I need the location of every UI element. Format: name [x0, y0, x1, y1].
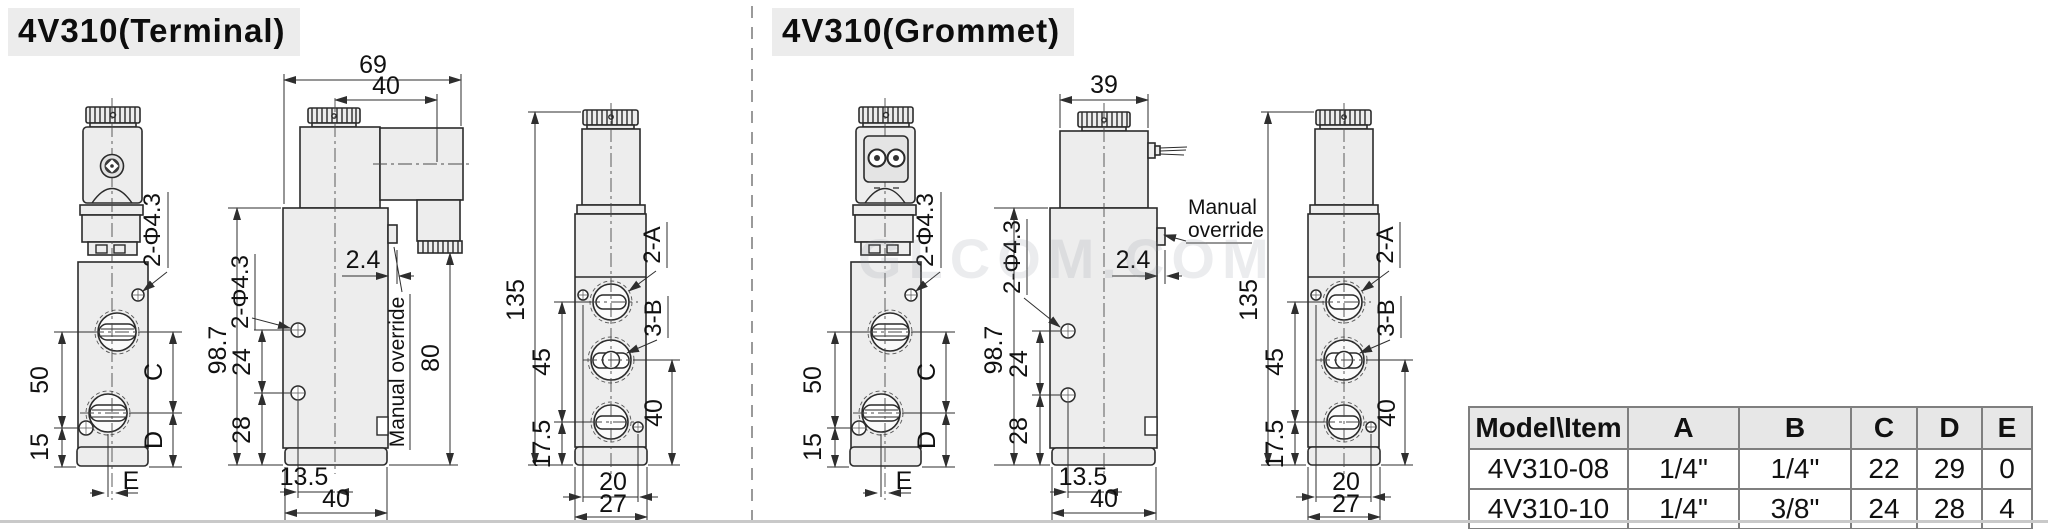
dim-hole-label: 2-Φ4.3 [912, 193, 939, 267]
dim-hole-label: 2-Φ4.3 [227, 255, 254, 329]
dim-40-right: 40 [1373, 399, 1401, 427]
dim-40-bottom: 40 [1090, 485, 1118, 513]
col-model-item: Model\Item [1469, 407, 1628, 449]
dim-24: 24 [1005, 350, 1033, 378]
table-row: 4V310-10 1/4" 3/8" 24 28 4 [1469, 489, 2032, 529]
col-a: A [1628, 407, 1739, 449]
dim-40-bottom: 40 [322, 485, 350, 513]
spec-table-header-row: Model\Item A B C D E [1469, 407, 2032, 449]
port-label-2A: 2-A [1372, 226, 1399, 263]
dim-39: 39 [1090, 71, 1118, 99]
dim-40-right: 40 [640, 399, 668, 427]
dim-15: 15 [799, 433, 827, 461]
dim-135: 135 [1235, 279, 1263, 321]
dim-135: 135 [502, 279, 530, 321]
spec-table: Model\Item A B C D E 4V310-08 1/4" 1/4" … [1468, 406, 2033, 529]
cell-e: 4 [1982, 489, 2032, 529]
terminal-side-view: 69 40 2-Φ4.3 98.7 24 28 2.4 Manual overr… [204, 51, 472, 520]
cell-model: 4V310-08 [1469, 449, 1628, 489]
dim-50: 50 [799, 366, 827, 394]
dim-28: 28 [1005, 417, 1033, 445]
col-e: E [1982, 407, 2032, 449]
col-c: C [1851, 407, 1917, 449]
dim-15: 15 [26, 433, 54, 461]
dim-E: E [123, 467, 140, 495]
manual-override-label-line1: Manual [1188, 196, 1257, 219]
cell-d: 28 [1917, 489, 1982, 529]
dim-13-5: 13.5 [280, 463, 329, 491]
cell-c: 22 [1851, 449, 1917, 489]
cell-b: 3/8" [1739, 489, 1851, 529]
port-label-2A: 2-A [639, 226, 666, 263]
cell-a: 1/4" [1628, 449, 1739, 489]
dim-80: 80 [417, 344, 445, 372]
manual-override-label: Manual override [386, 297, 409, 448]
port-label-3B: 3-B [1373, 299, 1400, 336]
dim-2-4: 2.4 [1116, 246, 1151, 274]
dim-2-4: 2.4 [346, 246, 381, 274]
dim-40-top: 40 [372, 72, 400, 100]
dim-C: C [913, 363, 941, 381]
cell-a: 1/4" [1628, 489, 1739, 529]
dim-E: E [896, 467, 913, 495]
terminal-right-view: 135 45 17.5 40 20 27 2-A 3-B [502, 103, 680, 522]
dim-45: 45 [528, 348, 556, 376]
cell-b: 1/4" [1739, 449, 1851, 489]
cell-c: 24 [1851, 489, 1917, 529]
cell-model: 4V310-10 [1469, 489, 1628, 529]
dim-98-7: 98.7 [980, 326, 1008, 375]
col-d: D [1917, 407, 1982, 449]
col-b: B [1739, 407, 1851, 449]
dim-27: 27 [599, 490, 627, 518]
dim-17-5: 17.5 [528, 420, 556, 469]
dim-28: 28 [228, 416, 256, 444]
grommet-connector-sockets-icon [864, 136, 908, 188]
dim-27: 27 [1332, 490, 1360, 518]
dim-24: 24 [228, 348, 256, 376]
terminal-front-view: 2-Φ4.3 50 15 C D E [26, 98, 182, 500]
page-bottom-divider [0, 520, 2048, 523]
dim-C: C [140, 363, 168, 381]
grommet-right-view: 135 45 17.5 40 20 27 2-A 3-B [1235, 103, 1413, 522]
grommet-side-view: 39 2-Φ4.3 98.7 24 28 2.4 Manual override… [980, 71, 1264, 520]
cell-d: 29 [1917, 449, 1982, 489]
catalog-page: 2-Φ4.3 50 15 C D E [0, 0, 2048, 529]
terminal-connector-screw-icon [101, 155, 124, 178]
dim-hole-label: 2-Φ4.3 [139, 193, 166, 267]
cell-e: 0 [1982, 449, 2032, 489]
manual-override-label-line2: override [1188, 219, 1264, 242]
grommet-front-view: 2-Φ4.3 50 15 C D E [799, 98, 955, 500]
table-row: 4V310-08 1/4" 1/4" 22 29 0 [1469, 449, 2032, 489]
dim-hole-label: 2-Φ4.3 [999, 220, 1026, 294]
section-title-terminal: 4V310(Terminal) [8, 8, 300, 56]
section-title-grommet: 4V310(Grommet) [772, 8, 1074, 56]
dim-D: D [140, 431, 168, 449]
port-label-3B: 3-B [640, 299, 667, 336]
dim-D: D [913, 431, 941, 449]
dim-50: 50 [26, 366, 54, 394]
dim-17-5: 17.5 [1261, 420, 1289, 469]
dim-45: 45 [1261, 348, 1289, 376]
